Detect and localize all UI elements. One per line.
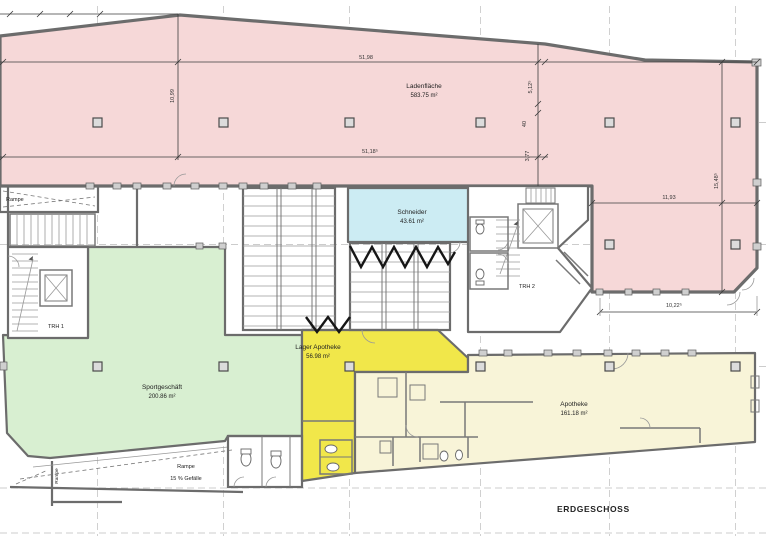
- label-apotheke-area: 161.18 m²: [560, 411, 587, 417]
- label-sportgeschaeft-area: 200.86 m²: [148, 394, 175, 400]
- dim-top-width: 51,98: [359, 55, 373, 61]
- wc-block-green: [228, 436, 302, 487]
- label-ladenflaeche-name: Ladenfläche: [406, 83, 442, 90]
- central-steps-left: [243, 188, 335, 330]
- label-rampe-upper: Rampe: [6, 197, 24, 203]
- toilet-fixture: [440, 451, 448, 461]
- dim-lobe-width: 11,93: [662, 195, 675, 201]
- label-lager-apotheke-name: Lager Apotheke: [295, 344, 341, 351]
- label-lager-apotheke-area: 56.98 m²: [306, 354, 330, 360]
- floor-plan: Ladenfläche 583.75 m² Schneider 43.61 m²…: [0, 0, 768, 560]
- label-apotheke-name: Apotheke: [560, 401, 588, 408]
- label-schneider-area: 43.61 m²: [400, 219, 424, 225]
- dim-bottom-width: 10,22⁵: [666, 302, 682, 309]
- door-arc: [234, 477, 276, 487]
- label-sportgeschaeft-name: Sportgeschäft: [142, 384, 182, 391]
- sink-fixture: [456, 450, 463, 460]
- dim-left-height: 10,99: [170, 89, 176, 103]
- toilet-fixture: [325, 445, 337, 453]
- room-apotheke: [355, 353, 759, 473]
- dim-inner-width: 51,18⁵: [362, 148, 378, 155]
- stair-run: [10, 214, 95, 246]
- stairwell-trh2: [468, 186, 592, 332]
- floor-title: ERDGESCHOSS: [557, 504, 630, 514]
- toilet-fixture: [476, 269, 484, 279]
- folding-partition-upper: [350, 246, 455, 267]
- label-rampe-slope: 15 % Gefälle: [170, 476, 202, 482]
- label-rampe-lower: Rampe: [177, 464, 195, 470]
- toilet-fixture: [476, 224, 484, 234]
- dim-right-chain-2: 40: [522, 121, 528, 127]
- label-trh2: TRH 2: [519, 284, 535, 290]
- dim-lobe-height: 15,48⁵: [713, 173, 720, 189]
- dim-right-chain-3: 3,77: [525, 151, 531, 162]
- label-schneider-name: Schneider: [397, 209, 427, 216]
- label-ladenflaeche-area: 583.75 m²: [410, 93, 437, 99]
- dim-right-chain-1: 5,12⁵: [527, 81, 534, 94]
- label-trh1: TRH 1: [48, 324, 64, 330]
- label-rampe-side: Rampe: [54, 468, 60, 484]
- toilet-fixture: [327, 463, 339, 471]
